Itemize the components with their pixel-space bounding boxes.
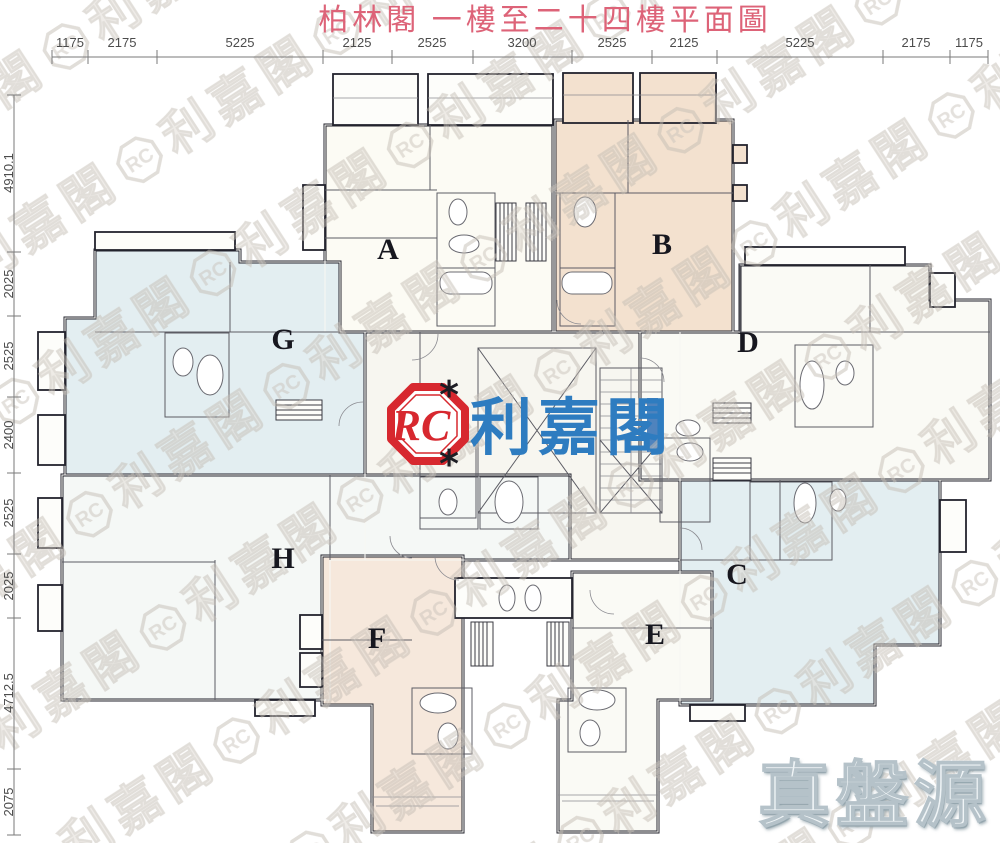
dimension-label: 2175: [108, 35, 137, 50]
logo-brand-text: 利嘉閣: [470, 391, 674, 464]
unit-label-b: B: [652, 228, 672, 261]
unit-label-d: D: [737, 326, 759, 359]
dimension-label: 2025: [1, 572, 16, 601]
dimension-label: 2400: [1, 421, 16, 450]
floor-plan: RC 利嘉閣: [0, 0, 1000, 843]
page-title: 柏林閣 一樓至二十四樓平面圖: [318, 4, 772, 37]
dimension-label: 4910.1: [1, 153, 16, 193]
dimension-label: 1175: [56, 35, 84, 50]
dimension-label: 2025: [1, 270, 16, 299]
unit-label-h: H: [271, 542, 294, 575]
dimension-label: 2125: [343, 35, 372, 50]
dimension-label: 3200: [508, 35, 537, 50]
dimension-label: 2525: [598, 35, 627, 50]
dimension-label: 1175: [955, 35, 983, 50]
dimension-label: 2175: [902, 35, 931, 50]
unit-label-c: C: [726, 558, 748, 591]
dimension-label: 2525: [418, 35, 447, 50]
unit-label-e: E: [645, 618, 665, 651]
unit-label-a: A: [377, 233, 399, 266]
floor-plan-page: RC 利嘉閣: [0, 0, 1000, 843]
verified-listing-watermark: 真盤源: [758, 736, 992, 841]
unit-label-f: F: [368, 622, 386, 655]
dimension-label: 4712.5: [1, 673, 16, 713]
footnote-asterisk: *: [439, 442, 459, 486]
dimension-label: 2525: [1, 499, 16, 528]
dimension-label: 2525: [1, 342, 16, 371]
footnote-asterisk: *: [439, 373, 459, 417]
dimension-label: 5225: [786, 35, 815, 50]
unit-label-g: G: [271, 323, 294, 356]
dimension-label: 5225: [226, 35, 255, 50]
dimension-label: 2125: [670, 35, 699, 50]
dimension-label: 2075: [1, 788, 16, 817]
